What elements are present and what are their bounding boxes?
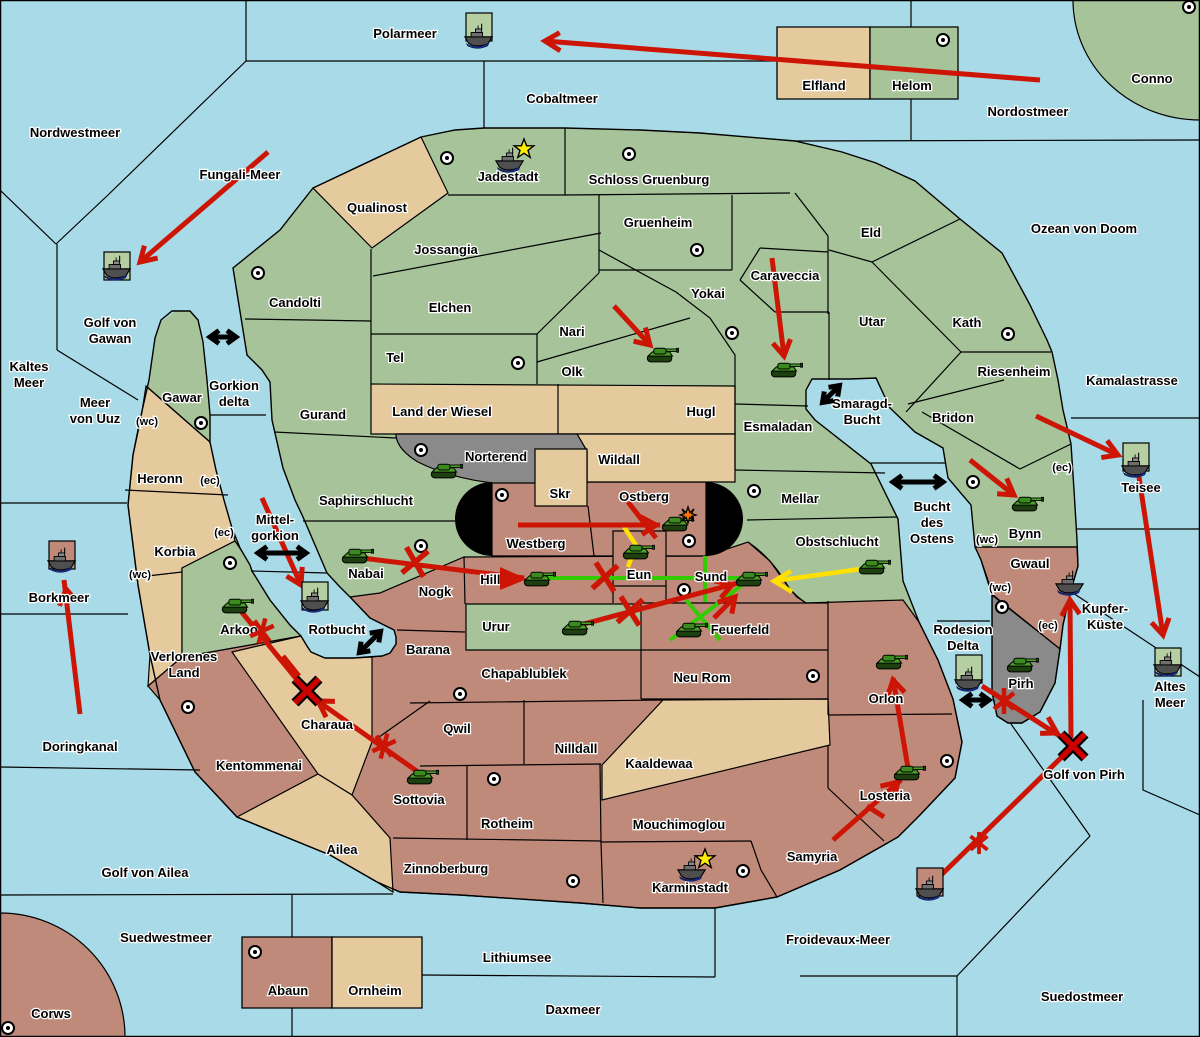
svg-text:Mittel-: Mittel- [256,512,294,527]
svg-text:Bucht: Bucht [914,499,952,514]
svg-text:Candolti: Candolti [269,295,321,310]
svg-text:Fungali-Meer: Fungali-Meer [200,167,281,182]
svg-text:Ostens: Ostens [910,531,954,546]
svg-text:Nari: Nari [559,324,584,339]
svg-text:Meer: Meer [80,395,110,410]
svg-text:Heronn: Heronn [137,471,183,486]
svg-text:Kaltes: Kaltes [9,359,48,374]
svg-text:Gawar: Gawar [162,390,202,405]
svg-text:(wc): (wc) [129,569,151,581]
svg-text:Golf von Ailea: Golf von Ailea [102,865,190,880]
svg-text:(ec): (ec) [214,527,234,539]
svg-text:Saphirschlucht: Saphirschlucht [319,493,414,508]
svg-text:Caraveccia: Caraveccia [751,268,820,283]
svg-text:Bridon: Bridon [932,410,974,425]
svg-text:(ec): (ec) [200,475,220,487]
svg-text:Barana: Barana [406,642,451,657]
svg-text:Hugl: Hugl [687,404,716,419]
svg-text:des: des [921,515,943,530]
svg-text:Kentommenai: Kentommenai [216,758,302,773]
svg-text:Smaragd-: Smaragd- [832,396,892,411]
svg-text:Mouchimoglou: Mouchimoglou [633,817,725,832]
svg-text:Land: Land [168,665,199,680]
svg-text:Olk: Olk [562,364,584,379]
svg-text:Golf von Pirh: Golf von Pirh [1043,767,1125,782]
svg-text:Cobaltmeer: Cobaltmeer [526,91,598,106]
svg-text:Mellar: Mellar [781,491,819,506]
svg-text:Daxmeer: Daxmeer [546,1002,601,1017]
svg-text:Eld: Eld [861,225,881,240]
svg-text:Kamalastrasse: Kamalastrasse [1086,373,1178,388]
svg-text:Qwil: Qwil [443,721,470,736]
svg-text:Obstschlucht: Obstschlucht [795,534,879,549]
svg-text:Conno: Conno [1131,71,1172,86]
svg-text:Doringkanal: Doringkanal [42,739,117,754]
svg-text:Riesenheim: Riesenheim [978,364,1051,379]
svg-text:Rotbucht: Rotbucht [308,622,366,637]
svg-text:Altes: Altes [1154,679,1186,694]
svg-text:Land der Wiesel: Land der Wiesel [392,404,492,419]
svg-text:Eun: Eun [627,567,652,582]
svg-text:Jossangia: Jossangia [414,242,478,257]
svg-text:Bynn: Bynn [1009,526,1042,541]
svg-text:(wc): (wc) [136,416,158,428]
svg-text:Nordwestmeer: Nordwestmeer [30,125,120,140]
svg-text:Skr: Skr [550,486,571,501]
svg-text:Losteria: Losteria [860,788,911,803]
svg-text:Gruenheim: Gruenheim [624,215,693,230]
svg-text:Yokai: Yokai [691,286,725,301]
svg-text:Küste: Küste [1087,617,1123,632]
svg-text:Bucht: Bucht [844,412,882,427]
svg-text:Elfland: Elfland [802,78,845,93]
svg-text:Pirh: Pirh [1008,676,1033,691]
svg-text:Suedostmeer: Suedostmeer [1041,989,1123,1004]
svg-text:Neu Rom: Neu Rom [673,670,730,685]
svg-text:Schloss Gruenburg: Schloss Gruenburg [589,172,710,187]
svg-text:Zinnoberburg: Zinnoberburg [404,861,489,876]
svg-text:Gawan: Gawan [89,331,132,346]
svg-text:Nogk: Nogk [419,584,452,599]
svg-text:Kath: Kath [953,315,982,330]
svg-text:Polarmeer: Polarmeer [373,26,437,41]
svg-text:Meer: Meer [14,375,44,390]
svg-text:Esmaladan: Esmaladan [744,419,813,434]
svg-text:Ozean von Doom: Ozean von Doom [1031,221,1137,236]
svg-text:Charaua: Charaua [301,717,354,732]
svg-text:Gorkion: Gorkion [209,378,259,393]
svg-text:Nabai: Nabai [348,566,383,581]
svg-text:Gwaul: Gwaul [1010,556,1049,571]
svg-text:gorkion: gorkion [251,528,299,543]
svg-text:Samyria: Samyria [787,849,838,864]
svg-text:(wc): (wc) [976,534,998,546]
svg-text:Feuerfeld: Feuerfeld [711,622,770,637]
svg-text:Ailea: Ailea [326,842,358,857]
svg-text:Korbia: Korbia [154,544,196,559]
svg-text:Teisee: Teisee [1121,480,1161,495]
svg-text:Borkmeer: Borkmeer [29,590,90,605]
svg-text:Kaaldewaa: Kaaldewaa [625,756,693,771]
svg-text:Gurand: Gurand [300,407,346,422]
svg-text:Meer: Meer [1155,695,1185,710]
svg-text:Sund: Sund [695,569,728,584]
svg-text:Abaun: Abaun [268,983,309,998]
svg-text:(ec): (ec) [1052,462,1072,474]
svg-text:Rotheim: Rotheim [481,816,533,831]
svg-text:Corws: Corws [31,1006,71,1021]
svg-text:Nordostmeer: Nordostmeer [988,104,1069,119]
svg-text:delta: delta [219,394,250,409]
svg-text:Chapablublek: Chapablublek [481,666,567,681]
svg-text:Orlon: Orlon [869,691,904,706]
svg-text:Wildall: Wildall [598,452,640,467]
svg-text:Westberg: Westberg [507,536,566,551]
svg-text:Karminstadt: Karminstadt [652,880,729,895]
svg-text:Verlorenes: Verlorenes [151,649,218,664]
svg-text:Urur: Urur [482,619,509,634]
svg-text:Suedwestmeer: Suedwestmeer [120,930,212,945]
svg-text:Golf von: Golf von [84,315,137,330]
svg-text:(ec): (ec) [1038,620,1058,632]
svg-text:(wc): (wc) [989,582,1011,594]
svg-text:Qualinost: Qualinost [347,200,408,215]
svg-text:Sottovia: Sottovia [393,792,445,807]
svg-text:Ostberg: Ostberg [619,489,669,504]
svg-text:Nilldall: Nilldall [555,741,598,756]
svg-text:Delta: Delta [947,638,980,653]
svg-text:von Uuz: von Uuz [70,411,121,426]
svg-text:Lithiumsee: Lithiumsee [483,950,552,965]
svg-text:Tel: Tel [386,350,404,365]
svg-text:Froidevaux-Meer: Froidevaux-Meer [786,932,890,947]
svg-text:Utar: Utar [859,314,885,329]
svg-text:Helom: Helom [892,78,932,93]
svg-text:Kupfer-: Kupfer- [1082,601,1128,616]
svg-text:Rodesion: Rodesion [933,622,992,637]
svg-text:Ornheim: Ornheim [348,983,401,998]
svg-text:Norterend: Norterend [465,449,527,464]
svg-text:Elchen: Elchen [429,300,472,315]
